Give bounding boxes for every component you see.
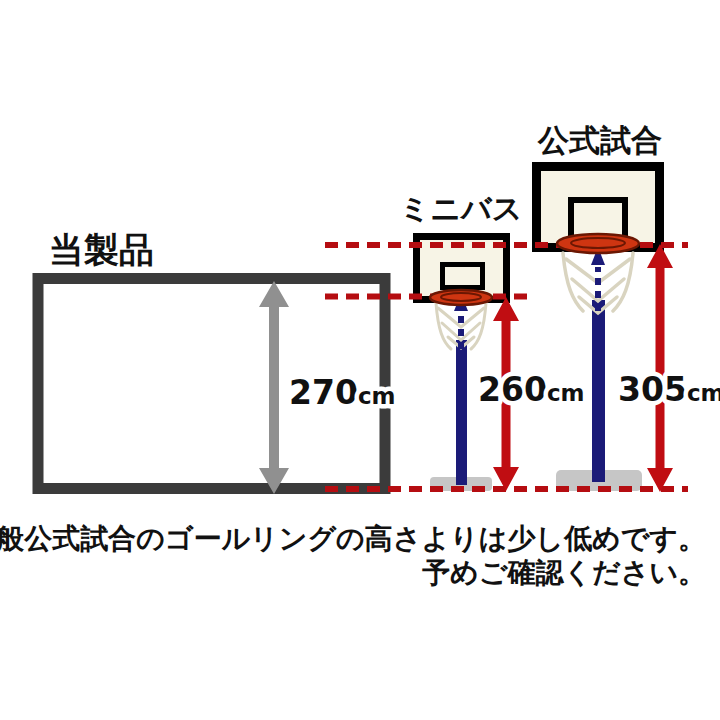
official-rim: [557, 234, 639, 253]
official-height-label: 305cm: [618, 370, 720, 409]
official-pole: [592, 300, 605, 482]
official-height-arrow-icon: [647, 244, 673, 492]
minibas-label: ミニバス: [400, 191, 523, 226]
minibas-backboard-inner-square: [443, 265, 483, 288]
official-label: 公式試合: [537, 122, 662, 158]
minibas-rim: [430, 290, 492, 305]
product-label: 当製品: [49, 230, 154, 270]
note-line-1: ※一般公式試合のゴールリングの高さよりは少し低めです。: [0, 522, 706, 555]
minibas-pole: [456, 340, 467, 485]
height-comparison-diagram: 270cm 260cm 305cm 当製品 ミニバス 公式試合 ※一般公式試合の…: [0, 0, 720, 720]
diagram-canvas: 270cm 260cm 305cm 当製品 ミニバス 公式試合 ※一般公式試合の…: [0, 0, 720, 720]
note-line-2: 予めご確認ください。: [422, 556, 706, 589]
minibas-height-label: 260cm: [478, 370, 585, 409]
